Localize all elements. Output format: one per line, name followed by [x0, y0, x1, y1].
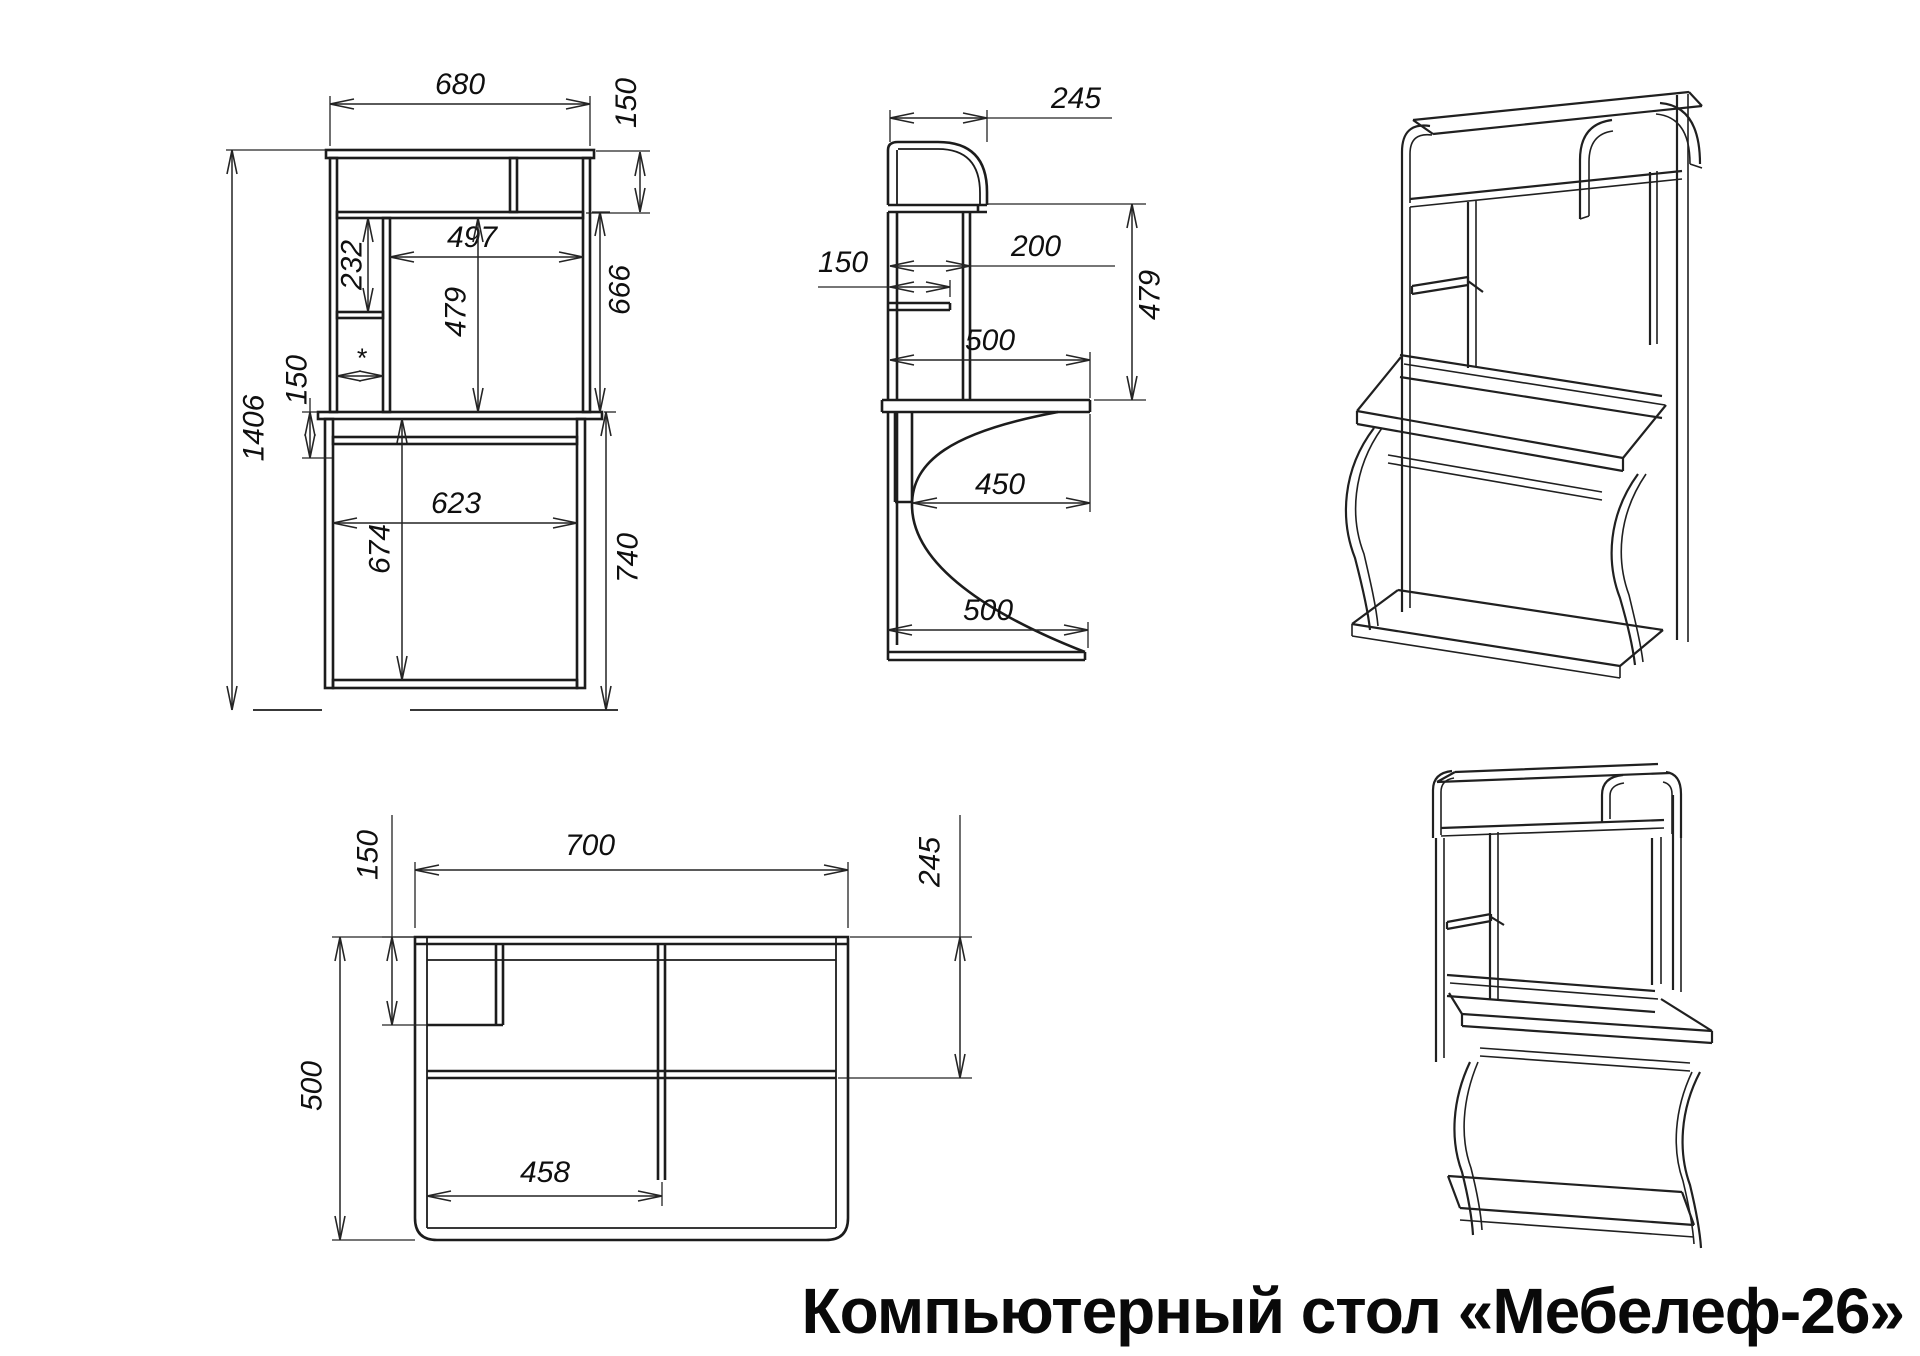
dim-side-top-depth: 500	[965, 324, 1015, 357]
dim-front-shelf-spacing: 232	[336, 240, 369, 291]
dim-front-cornice-height: 150	[610, 78, 643, 128]
dim-front-overall-width: 680	[435, 68, 485, 101]
dim-top-overall-width: 700	[565, 829, 615, 862]
dim-front-desk-inner-width: 623	[431, 487, 481, 520]
dim-front-desk-height: 740	[612, 533, 645, 583]
dim-front-niche-width: 497	[447, 221, 498, 254]
dim-front-niche-height: 479	[440, 287, 473, 337]
dim-front-note-star: *	[356, 343, 368, 373]
dim-side-niche-height: 479	[1134, 270, 1167, 320]
perspective-view-main	[1346, 92, 1702, 678]
dim-top-inner-width: 458	[520, 1156, 570, 1189]
dim-side-desktop-depth: 450	[975, 468, 1025, 501]
technical-drawing: 680 150 497 479 232 * 150 1406 666 623 6…	[0, 0, 1920, 1356]
dim-top-overall-depth: 500	[296, 1061, 329, 1111]
front-view: 680 150 497 479 232 * 150 1406 666 623 6…	[226, 68, 650, 710]
dim-top-shelf-depth: 150	[352, 830, 385, 880]
dim-side-divider-depth: 200	[1010, 230, 1061, 263]
side-view: 245 150 200 479 500 450 500	[818, 82, 1167, 660]
drawing-title: Компьютерный стол «Мебелеф-26»	[404, 1274, 1904, 1348]
top-view: 700 150 500 245 458	[296, 815, 973, 1240]
dim-front-underdesk-height: 674	[364, 524, 397, 574]
dim-front-apron-height: 150	[281, 355, 314, 405]
perspective-view-secondary	[1433, 764, 1712, 1248]
dim-front-overall-height: 1406	[238, 394, 271, 461]
dim-front-hutch-height: 666	[604, 265, 637, 315]
dim-side-hutch-depth: 245	[1050, 82, 1101, 115]
dim-top-hutch-depth: 245	[914, 837, 947, 888]
dim-side-base-depth: 500	[963, 594, 1013, 627]
blueprint-canvas: 680 150 497 479 232 * 150 1406 666 623 6…	[0, 0, 1920, 1356]
dim-side-shelf-depth: 150	[818, 246, 868, 279]
